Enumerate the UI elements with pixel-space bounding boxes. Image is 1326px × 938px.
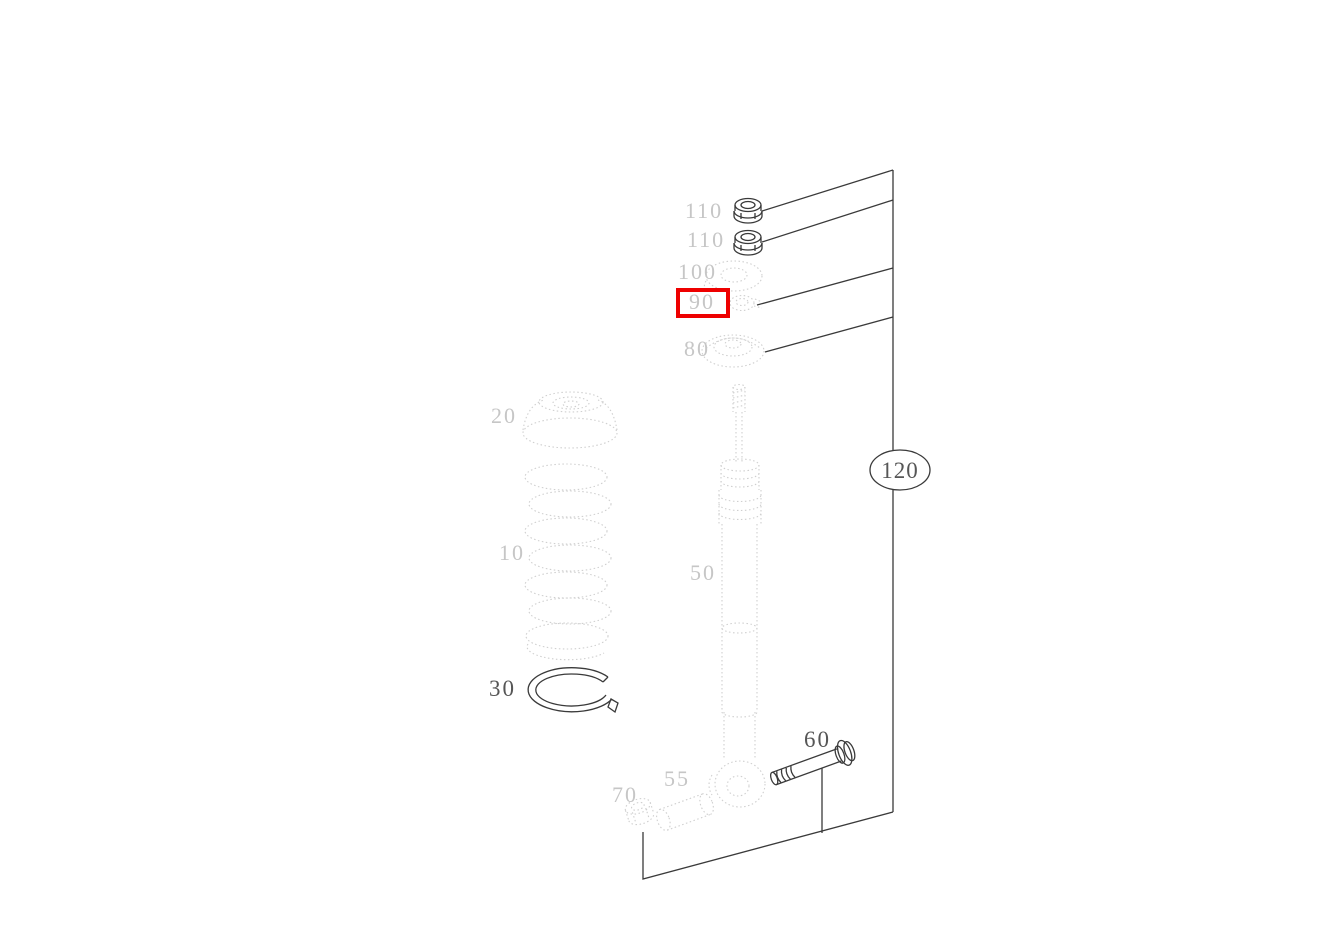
part-label-50[interactable]: 50 [690,562,716,584]
part-label-30[interactable]: 30 [489,677,516,700]
spacer-sleeve-55-drawing [654,792,716,833]
part-label-60[interactable]: 60 [804,728,831,751]
part-label-90[interactable]: 90 [689,291,715,313]
shock-absorber-50-drawing [709,385,765,808]
hex-nut-110-lower-drawing [734,231,762,256]
part-label-110-upper[interactable]: 110 [685,200,723,222]
epc-parts-diagram: 110 110 100 90 80 20 10 30 50 55 70 60 1… [0,0,1326,938]
part-label-70[interactable]: 70 [612,784,638,806]
spring-seat-20-drawing [523,392,617,448]
parts-diagram-canvas [0,0,1326,938]
washer-90-drawing [730,296,762,311]
coil-spring-10-drawing [525,464,611,660]
strut-mount-80-drawing [702,335,764,367]
part-label-20[interactable]: 20 [491,405,517,427]
retaining-ring-30-drawing [528,668,618,712]
part-label-80[interactable]: 80 [684,338,710,360]
part-label-55[interactable]: 55 [664,768,690,790]
part-label-10[interactable]: 10 [499,542,525,564]
assembly-callout-120[interactable]: 120 [870,458,930,484]
hex-nut-110-upper-drawing [734,199,762,224]
part-label-110-lower[interactable]: 110 [687,229,725,251]
part-label-100[interactable]: 100 [678,261,717,283]
